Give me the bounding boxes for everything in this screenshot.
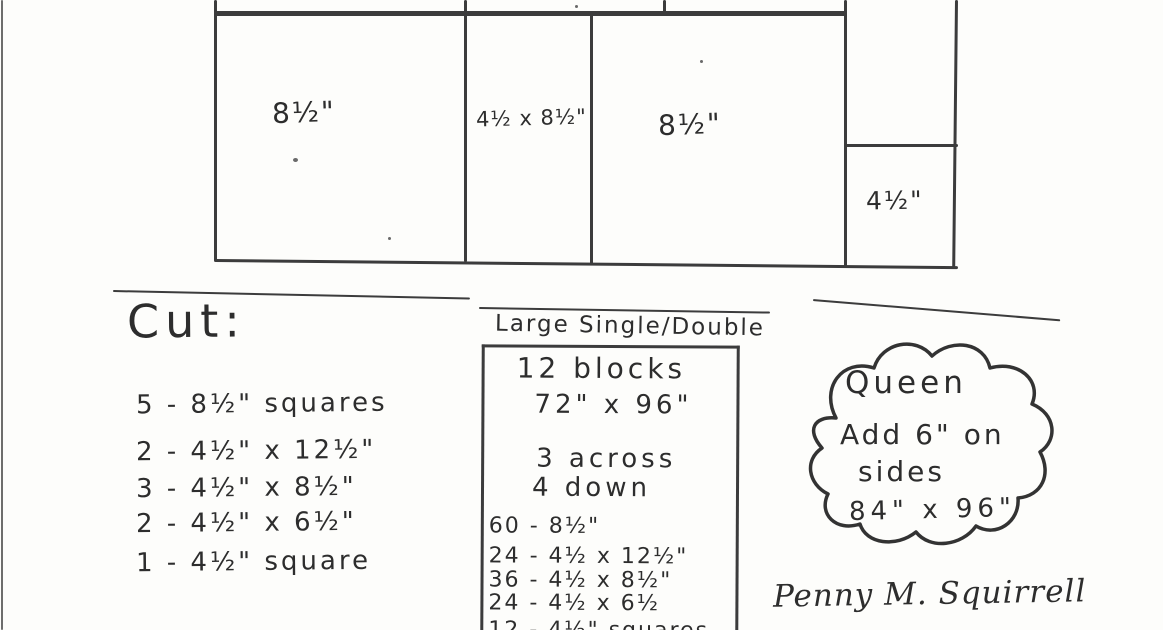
queen-note-line: Queen bbox=[845, 367, 967, 400]
size-box: 12 blocks 72" x 96" 3 across 4 down 60 -… bbox=[480, 344, 740, 630]
diagram-line bbox=[214, 0, 217, 261]
cut-list-heading: Cut: bbox=[127, 296, 246, 345]
size-box-count: 60 - 8½" bbox=[489, 514, 600, 538]
size-box-count: 24 - 4½ x 12½" bbox=[489, 544, 689, 568]
size-box-title: Large Single/Double bbox=[495, 312, 765, 341]
queen-note-line: 84" x 96" bbox=[849, 495, 1017, 527]
scan-edge-line bbox=[1, 0, 3, 630]
size-box-dimensions: 72" x 96" bbox=[534, 392, 692, 420]
diagram-line bbox=[464, 0, 467, 262]
cell-label-4half: 4½" bbox=[866, 187, 924, 214]
cut-list-item: 2 - 4½" x 12½" bbox=[136, 437, 377, 467]
scan-speck bbox=[575, 5, 578, 8]
diagram-line bbox=[590, 14, 593, 264]
cut-list-item: 2 - 4½" x 6½" bbox=[136, 509, 357, 539]
scan-speck bbox=[700, 60, 703, 63]
cut-list-item: 3 - 4½" x 8½" bbox=[136, 474, 357, 504]
size-box-across: 3 across bbox=[536, 446, 676, 474]
diagram-line bbox=[844, 0, 847, 267]
queen-note-line: Add 6" on bbox=[840, 420, 1005, 449]
size-box-count: 24 - 4½ x 6½ bbox=[488, 591, 660, 615]
cut-list-item: 1 - 4½" square bbox=[136, 548, 371, 578]
diagram-line bbox=[952, 0, 958, 268]
size-box-count: 12 - 4½" squares bbox=[488, 618, 709, 630]
scan-speck bbox=[388, 237, 391, 240]
diagram-line bbox=[214, 11, 847, 16]
diagram-line bbox=[844, 144, 958, 147]
cell-label-4half-x-8half: 4½ x 8½" bbox=[476, 106, 587, 131]
size-box-blocks: 12 blocks bbox=[517, 354, 687, 384]
size-box-down: 4 down bbox=[532, 475, 651, 503]
cell-label-8half-right: 8½" bbox=[658, 109, 723, 141]
scan-speck bbox=[293, 158, 298, 162]
size-box-count: 36 - 4½ x 8½" bbox=[488, 568, 672, 592]
cell-label-8half-left: 8½" bbox=[272, 97, 337, 129]
designer-signature: Penny M. Squirrell bbox=[773, 573, 1087, 614]
scanned-quilt-pattern-page: 8½" 4½ x 8½" 8½" 4½" Cut: 5 - 8½" square… bbox=[0, 0, 1163, 630]
queen-note-line: sides bbox=[858, 457, 945, 486]
cut-list-item: 5 - 8½" squares bbox=[136, 390, 388, 420]
